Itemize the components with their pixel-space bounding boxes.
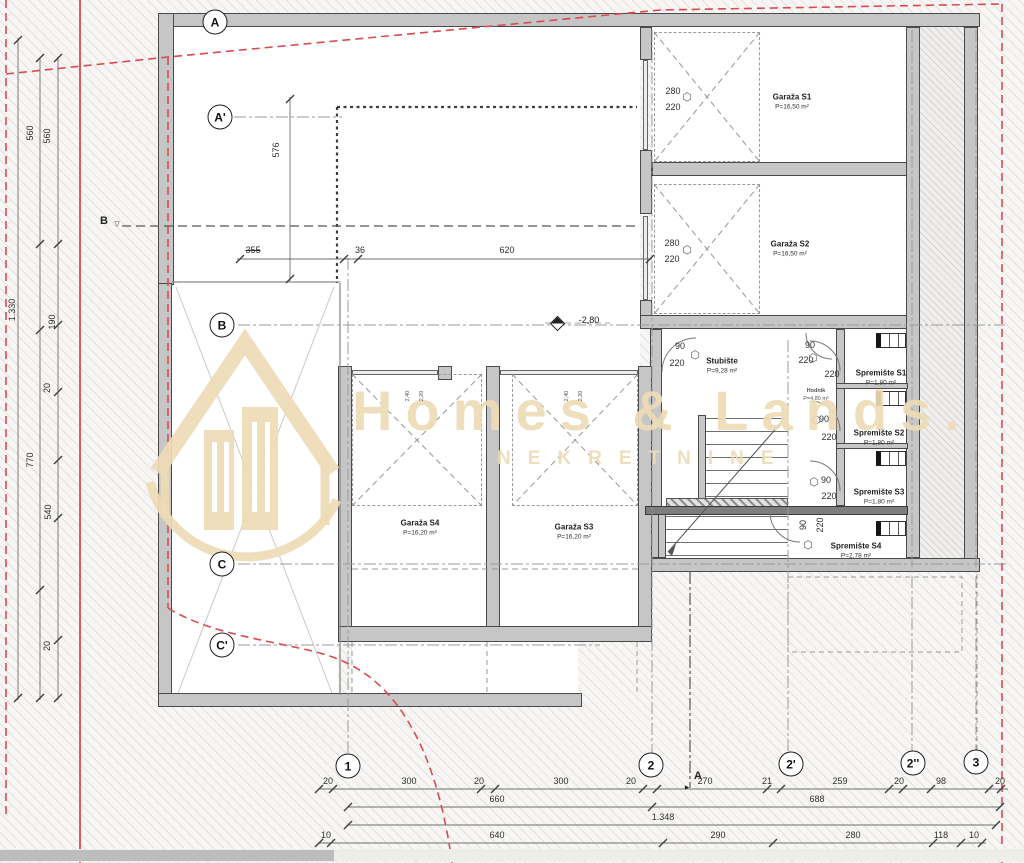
wall-garage-mid [486, 366, 500, 628]
room-label: Spremište S2 [854, 429, 905, 438]
dim-label: 300 [401, 776, 416, 786]
dim-label: 2,40 [405, 391, 411, 402]
wall-s1-west-b [640, 150, 652, 214]
room-area-label: P=1,80 m² [864, 499, 894, 506]
axis-bubble-2pp: 2'' [901, 751, 926, 776]
under-garage-region [352, 640, 578, 695]
dim-label: 220 [669, 358, 684, 368]
dim-label: 280 [665, 86, 680, 96]
room-label: Garaža S2 [771, 240, 810, 249]
dim-label: 220 [815, 517, 825, 532]
axis-bubble-C: C [210, 552, 235, 577]
room-label: Garaža S4 [401, 519, 440, 528]
wall-garage-west [338, 366, 352, 640]
axis-bubble-Cp: C' [210, 633, 235, 658]
dim-label: 280 [664, 238, 679, 248]
wall-left-ramp [158, 283, 172, 707]
wall-garage-south [338, 626, 652, 642]
dim-label: 10 [321, 830, 331, 840]
dim-label: 620 [499, 245, 514, 255]
shelf-icon-s2 [876, 391, 906, 406]
dim-label: 540 [43, 504, 53, 519]
dim-label: 576 [271, 142, 281, 157]
wall-hodnik-east [836, 329, 845, 506]
wall-garage-east [638, 366, 652, 640]
dim-label: 90 [805, 340, 815, 350]
dim-label: 560 [42, 128, 52, 143]
dim-label: 20 [42, 383, 52, 393]
axis-bubble-3: 3 [964, 750, 989, 775]
dim-label: 10 [969, 830, 979, 840]
wall-east-inner [906, 27, 920, 558]
section-marker-label: B [100, 215, 108, 227]
wall-above-s4 [645, 506, 908, 515]
dim-label: 300 [553, 776, 568, 786]
dim-label: 290 [710, 830, 725, 840]
room-area-label: P=16,50 m² [775, 104, 809, 111]
room-area-label: P=16,50 m² [773, 251, 807, 258]
room-label: Garaža S3 [555, 523, 594, 532]
wall-stair-flight [698, 415, 706, 506]
wall-top [158, 13, 980, 27]
room-label: Hodnik [807, 388, 826, 394]
section-marker-label: A [694, 770, 702, 782]
dim-label: 21 [762, 776, 772, 786]
room-area-label: P=16,20 m² [557, 534, 591, 541]
wall-left-upper [158, 13, 174, 285]
wall-ramp-bottom [158, 693, 582, 707]
room-area-label: P=2,78 m² [841, 553, 871, 560]
level-label: -2,80 [579, 315, 600, 325]
dim-label: 2,20 [419, 391, 425, 402]
wall-s1-west-a [640, 27, 652, 60]
dim-label: 220 [798, 355, 813, 365]
shelf-icon-s1 [876, 333, 906, 348]
parking-box-s3 [512, 374, 638, 506]
room-label: Spremište S1 [856, 369, 907, 378]
dim-label: 280 [845, 830, 860, 840]
dim-label: 640 [489, 830, 504, 840]
parking-box-s4 [352, 374, 482, 506]
dim-label: 560 [25, 125, 35, 140]
dim-label: 2,40 [564, 391, 570, 402]
dim-label: 90 [819, 414, 829, 424]
dim-label: 220 [664, 254, 679, 264]
axis-bubble-1: 1 [336, 754, 361, 779]
axis-bubble-2p: 2' [779, 752, 804, 777]
room-area-label: P=4,80 m² [803, 396, 829, 402]
wall-below-s2 [640, 315, 908, 329]
door-symbol-icon: ⬡ [809, 476, 819, 489]
dim-label: 259 [832, 776, 847, 786]
axis-bubble-2: 2 [639, 753, 664, 778]
dim-label: 36 [355, 245, 365, 255]
door-symbol-icon: ⬡ [690, 349, 700, 362]
garage-door-s3 [500, 370, 638, 375]
room-area-label: P=16,20 m² [403, 530, 437, 537]
room-label: Stubište [706, 357, 738, 366]
shelf-icon-s3 [876, 451, 906, 466]
dim-label: 190 [47, 314, 57, 329]
dim-label: 688 [809, 794, 824, 804]
room-label: Spremište S4 [831, 542, 882, 551]
room-area-label: P=1,80 m² [864, 440, 894, 447]
room-label: Spremište S3 [854, 488, 905, 497]
wall-east-outer [964, 27, 978, 572]
stair-flight-lower [666, 516, 788, 560]
section-marker-icon: ▽ [114, 220, 119, 228]
axis-bubble-Ap: A' [208, 105, 233, 130]
dim-label: 20 [323, 776, 333, 786]
wall-cavity-hatch [920, 27, 966, 558]
ramp-region [172, 283, 338, 695]
door-symbol-icon: ⬡ [803, 539, 813, 552]
floor-plan-canvas: ⬡ ⬡ ⬡ ⬡ ⬡ ⬡ ⬡ [0, 0, 1024, 863]
dim-label: 220 [821, 491, 836, 501]
garage-door-s1 [643, 60, 648, 150]
room-area-label: P=9,28 m² [707, 368, 737, 375]
axis-bubble-A: A [203, 10, 228, 35]
shelf-icon-s4 [876, 521, 906, 536]
dim-label: 118 [934, 830, 948, 840]
dim-label: 220 [665, 102, 680, 112]
dim-label: 90 [798, 520, 808, 530]
door-symbol-icon: ⬡ [682, 91, 692, 104]
parking-box-s1 [654, 32, 760, 162]
dim-label: 220 [821, 432, 836, 442]
dim-label: 20 [995, 776, 1005, 786]
wall-right-block-bottom [640, 558, 980, 572]
dim-label: 20 [42, 641, 52, 651]
room-area-label: P=1,80 m² [866, 380, 896, 387]
dim-label: 770 [25, 452, 35, 467]
door-symbol-icon: ⬡ [682, 244, 692, 257]
room-label: Garaža S1 [773, 93, 812, 102]
dim-label: 98 [936, 776, 946, 786]
wall-s1-s2 [652, 162, 908, 176]
axis-bubble-B: B [210, 313, 235, 338]
dim-label: 660 [489, 794, 504, 804]
dim-label: 20 [626, 776, 636, 786]
section-marker-icon: ► [684, 785, 691, 792]
dim-label: 90 [675, 341, 685, 351]
parking-box-s2 [654, 184, 760, 314]
garage-door-s4 [352, 370, 438, 375]
dim-label: 2,20 [578, 391, 584, 402]
dim-label: 355 [245, 245, 260, 255]
garage-door-s2 [643, 216, 648, 300]
stair-flight-upper [706, 418, 788, 502]
dim-label: 90 [821, 475, 831, 485]
dim-label: 1.348 [652, 812, 675, 822]
scrollbar-thumb[interactable] [0, 850, 334, 861]
dim-label: 220 [824, 369, 839, 379]
dim-label: 20 [474, 776, 484, 786]
dim-label: 1.330 [7, 299, 17, 322]
dim-label: 20 [894, 776, 904, 786]
